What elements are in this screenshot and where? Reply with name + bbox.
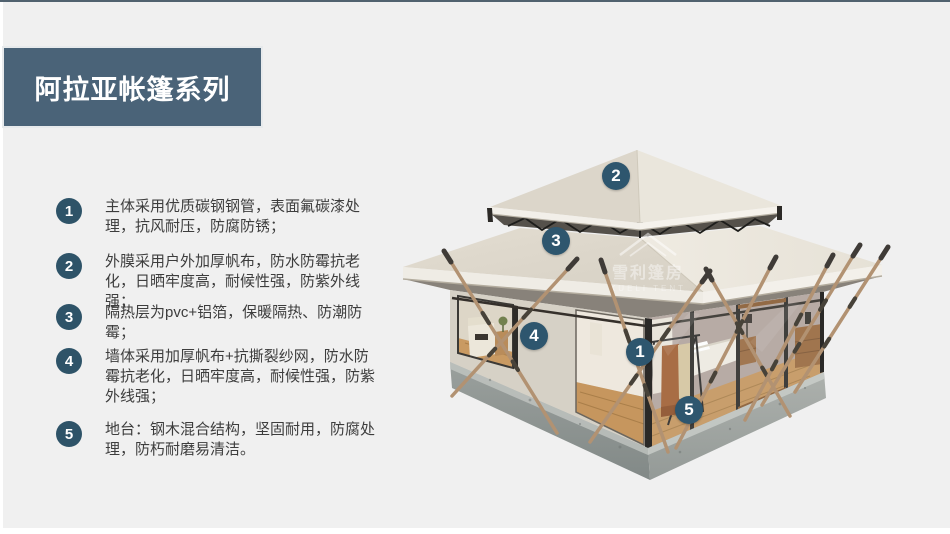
- tent-marker-5: 5: [675, 396, 703, 424]
- feature-item: 5 地台：钢木混合结构，坚固耐用，防腐处理，防朽耐磨易清洁。: [56, 420, 383, 460]
- feature-number-badge: 2: [56, 253, 82, 279]
- watermark-cn: 雪利篷房: [612, 263, 684, 282]
- feature-text: 墙体采用加厚帆布+抗撕裂纱网，防水防霉抗老化，日晒牢度高，耐候性强，防紫外线强；: [105, 347, 383, 407]
- feature-text: 隔热层为pvc+铝箔，保暖隔热、防潮防霉；: [105, 303, 383, 343]
- title-banner: 阿拉亚帐篷系列: [2, 46, 263, 128]
- feature-item: 4 墙体采用加厚帆布+抗撕裂纱网，防水防霉抗老化，日晒牢度高，耐候性强，防紫外线…: [56, 347, 383, 407]
- tent-marker-3: 3: [542, 227, 570, 255]
- feature-text: 地台：钢木混合结构，坚固耐用，防腐处理，防朽耐磨易清洁。: [105, 420, 383, 460]
- tent-render: 雪利篷房 XUELI TENT: [390, 142, 950, 494]
- feature-text: 主体采用优质碳钢钢管，表面氟碳漆处理，抗风耐压，防腐防锈；: [105, 197, 383, 237]
- tent-marker-2: 2: [602, 162, 630, 190]
- tent-illustration: 雪利篷房 XUELI TENT: [390, 142, 950, 494]
- feature-number-badge: 4: [56, 348, 82, 374]
- feature-item: 1 主体采用优质碳钢钢管，表面氟碳漆处理，抗风耐压，防腐防锈；: [56, 197, 383, 237]
- watermark-en: XUELI TENT: [610, 284, 686, 293]
- tent-marker-4: 4: [520, 322, 548, 350]
- feature-number-badge: 3: [56, 304, 82, 330]
- feature-number-badge: 1: [56, 198, 82, 224]
- slide: 阿拉亚帐篷系列 1 主体采用优质碳钢钢管，表面氟碳漆处理，抗风耐压，防腐防锈； …: [0, 0, 950, 534]
- feature-item: 3 隔热层为pvc+铝箔，保暖隔热、防潮防霉；: [56, 303, 383, 343]
- page-title: 阿拉亚帐篷系列: [35, 68, 231, 107]
- top-roof: [487, 150, 782, 230]
- tent-marker-1: 1: [626, 338, 654, 366]
- top-border-line: [0, 0, 950, 2]
- feature-number-badge: 5: [56, 421, 82, 447]
